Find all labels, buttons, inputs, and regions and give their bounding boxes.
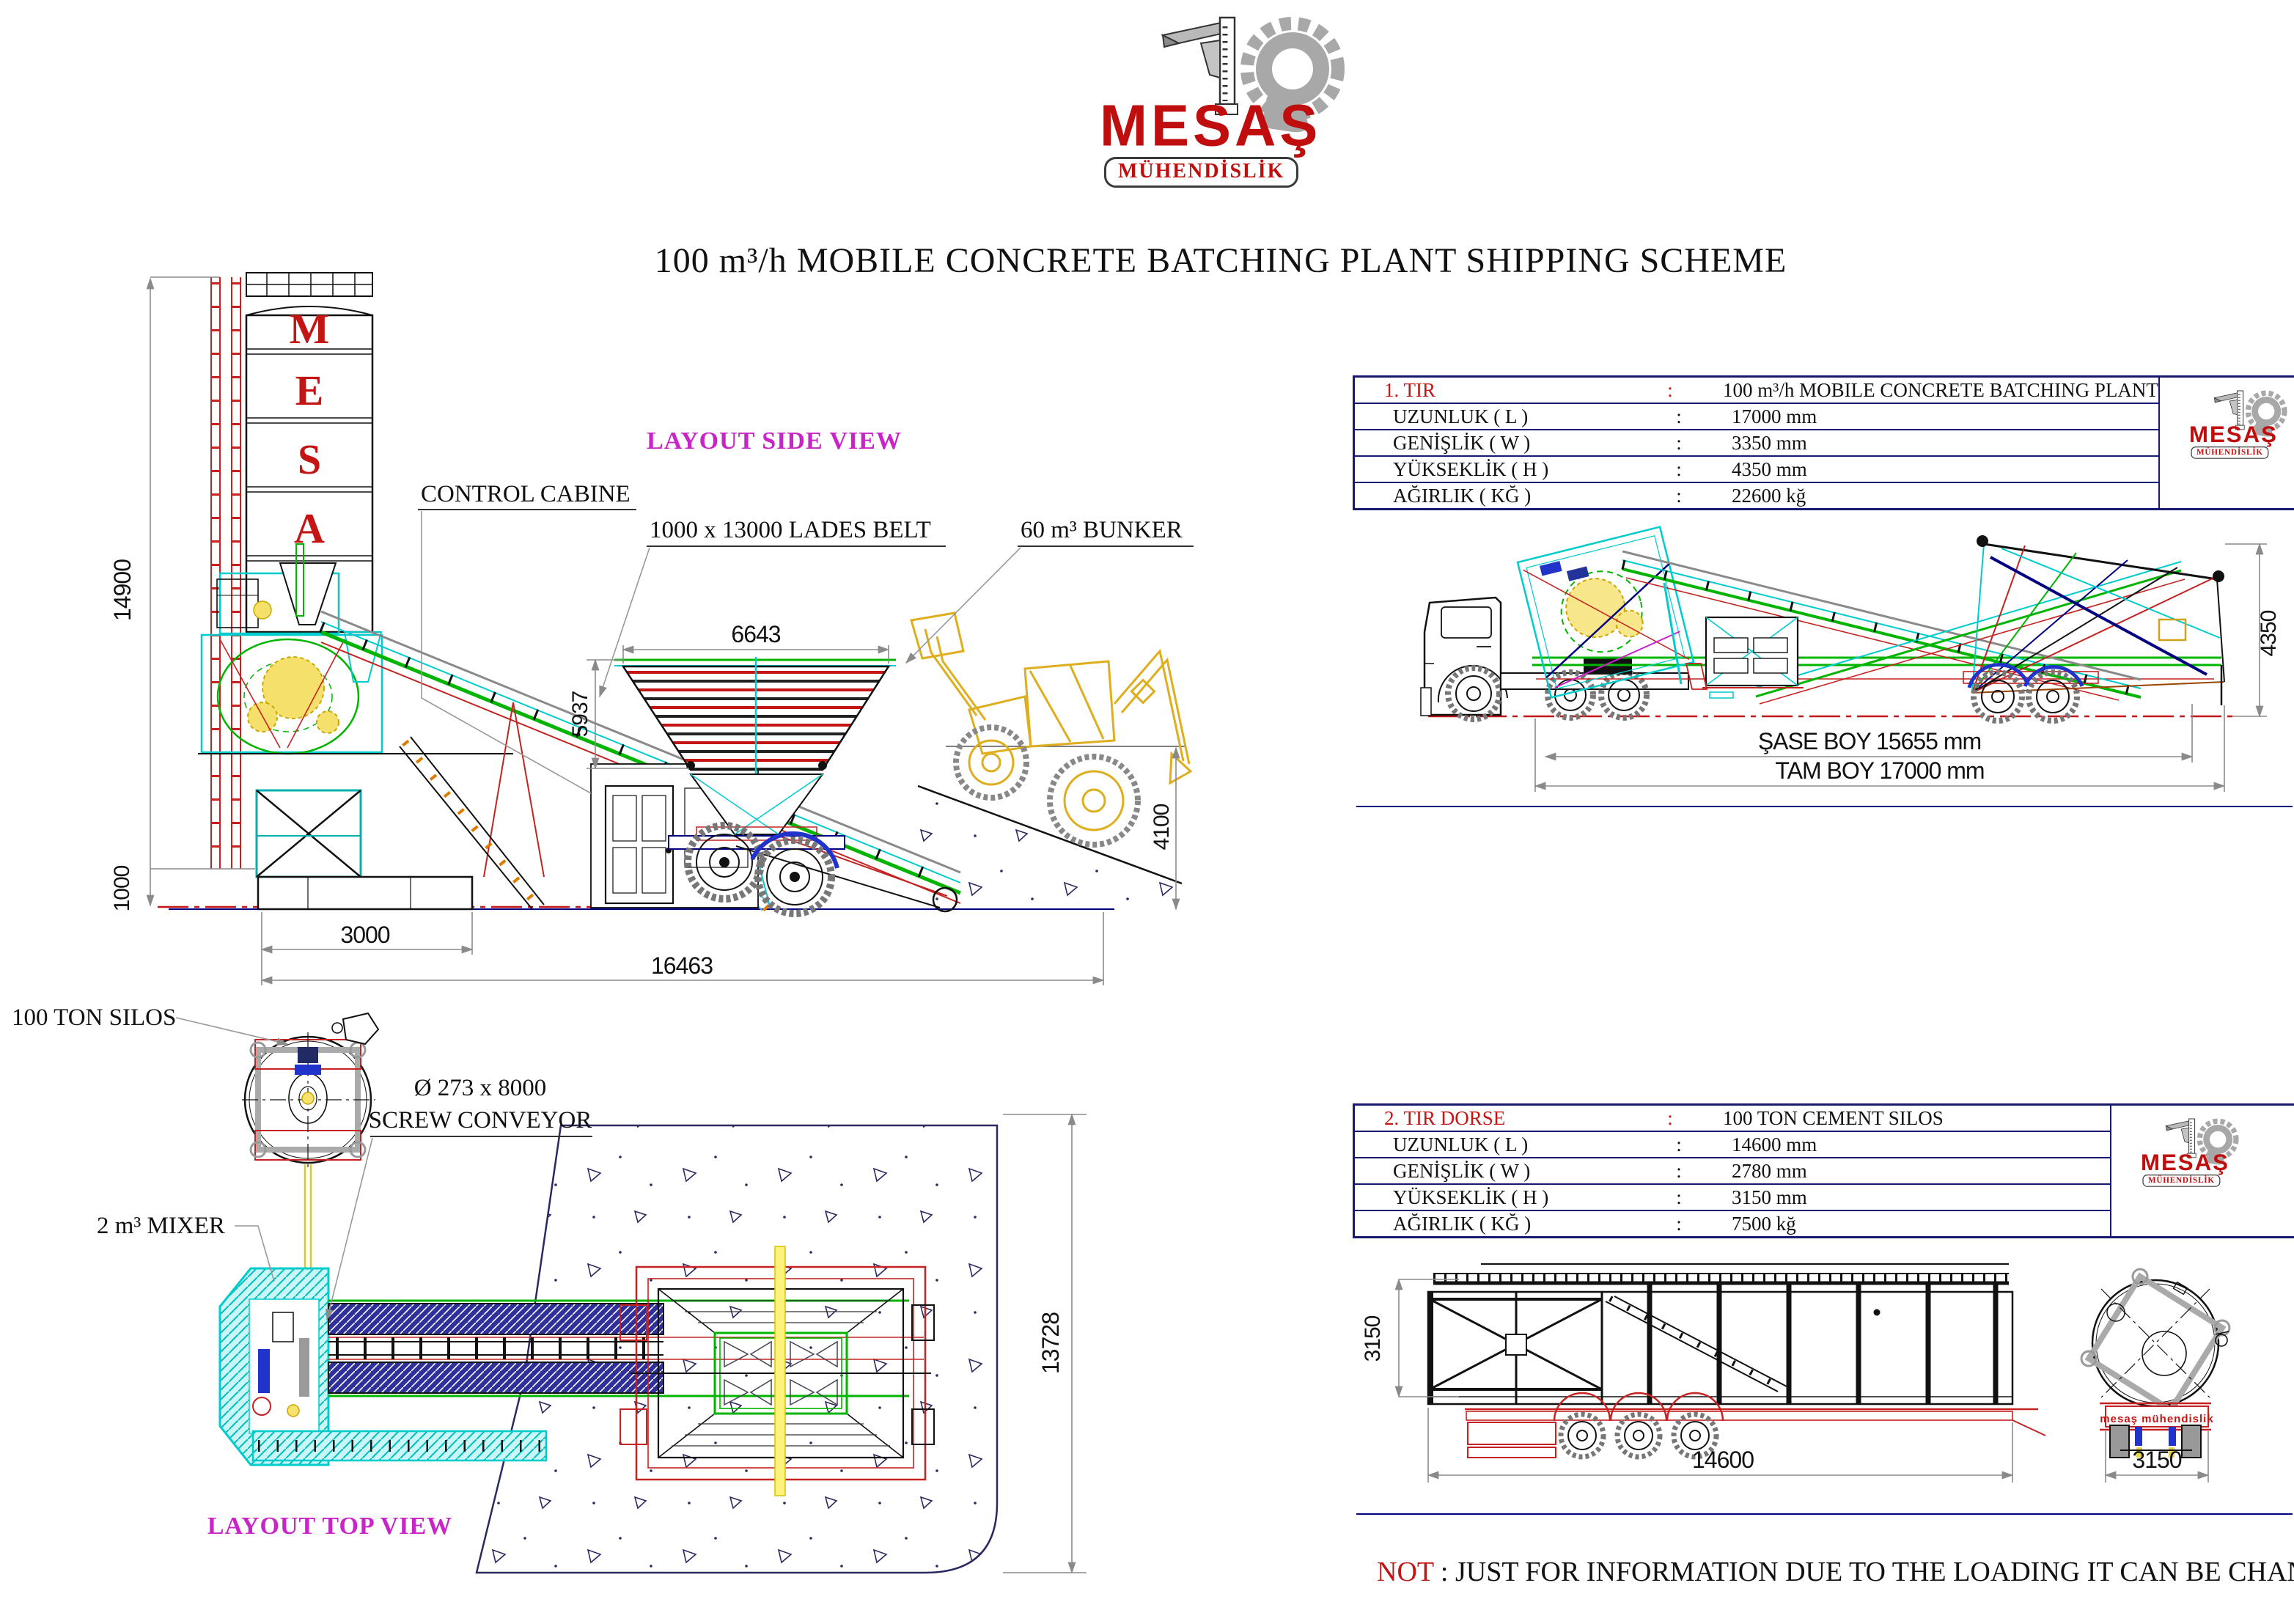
row-colon: : [1635, 432, 1723, 455]
dim-3150-h: 3150 [1361, 1315, 1385, 1362]
truck2-spec-table: 2. TIR DORSE : 100 TON CEMENT SILOS UZUN… [1353, 1103, 2294, 1238]
table-row: 1. TIR : 100 m³/h MOBILE CONCRETE BATCHI… [1355, 378, 2158, 404]
logo-subtitle: MÜHENDİSLİK [1104, 157, 1298, 188]
truck2-drawing: 3150 14600 mesaş mühendislik [1356, 1264, 2293, 1514]
row-value: 3150 mm [1723, 1186, 2110, 1209]
row-label: 2. TIR DORSE [1355, 1107, 1626, 1130]
row-colon: : [1635, 458, 1723, 481]
row-colon: : [1635, 1134, 1723, 1156]
table-row: UZUNLUK ( L ) : 14600 mm [1355, 1132, 2110, 1158]
truck1-dims [1535, 544, 2267, 792]
row-colon: : [1635, 1213, 1723, 1235]
screw-label-1: Ø 273 x 8000 [414, 1075, 547, 1101]
row-value: 17000 mm [1723, 405, 2158, 428]
dim-3000: 3000 [340, 922, 389, 948]
row-label: UZUNLUK ( L ) [1355, 405, 1635, 428]
note-prefix: NOT [1377, 1557, 1433, 1587]
table-row: GENİŞLİK ( W ) : 2780 mm [1355, 1158, 2110, 1185]
lades-belt-label: 1000 x 13000 LADES BELT [650, 517, 931, 543]
truck-cab [1421, 598, 1507, 716]
table-logo-cell: MESAŞ MÜHENDİSLİK [2158, 378, 2294, 508]
row-colon: : [1635, 405, 1723, 428]
concrete-pad [477, 1125, 997, 1573]
dim-13728: 13728 [1037, 1312, 1064, 1374]
row-value: 100 m³/h MOBILE CONCRETE BATCHING PLANT [1714, 379, 2158, 402]
table-logo-cell: MESAŞ MÜHENDİSLİK [2110, 1106, 2294, 1236]
mixer-label: 2 m³ MIXER [97, 1213, 225, 1239]
row-value: 4350 mm [1723, 458, 2158, 481]
logo-subtitle: MÜHENDİSLİK [2191, 447, 2268, 459]
row-label: GENİŞLİK ( W ) [1355, 1160, 1635, 1183]
dim-16463: 16463 [651, 952, 713, 979]
disclaimer-note: NOT : JUST FOR INFORMATION DUE TO THE LO… [1377, 1556, 2294, 1588]
row-value: 7500 kğ [1723, 1213, 2110, 1235]
dim-14600: 14600 [1692, 1447, 1754, 1473]
trailer-rear-wheels [1963, 665, 2221, 721]
silos-label: 100 TON SILOS [12, 1004, 176, 1031]
control-cabin-label: CONTROL CABINE [421, 481, 631, 507]
company-logo-mini: MESAŞ MÜHENDİSLİK [2189, 388, 2294, 473]
table-row: AĞIRLIK ( KĞ ) : 22600 kğ [1355, 483, 2158, 508]
drawing-sheet: M E S A Ş [0, 0, 2294, 1624]
silo-rear-view [2078, 1266, 2232, 1458]
row-label: AĞIRLIK ( KĞ ) [1355, 1213, 1635, 1235]
row-label: GENİŞLİK ( W ) [1355, 432, 1635, 455]
dim-6643: 6643 [731, 621, 780, 647]
table-row: UZUNLUK ( L ) : 17000 mm [1355, 404, 2158, 430]
silo-letter-s: S [298, 436, 321, 483]
note-body: : JUST FOR INFORMATION DUE TO THE LOADIN… [1433, 1557, 2294, 1587]
side-view-drawing: M E S A Ş [109, 273, 1194, 985]
row-colon: : [1635, 1160, 1723, 1183]
row-label: UZUNLUK ( L ) [1355, 1134, 1635, 1156]
dim-tam-boy: TAM BOY 17000 mm [1775, 757, 1984, 784]
top-view-caption: LAYOUT TOP VIEW [207, 1513, 452, 1540]
dim-14900: 14900 [109, 559, 136, 621]
table-row: 2. TIR DORSE : 100 TON CEMENT SILOS [1355, 1106, 2110, 1132]
ramp-concrete [909, 746, 1186, 911]
top-view-drawing: 13728 100 TON SILOS Ø 273 x 8000 SCREW C… [12, 1004, 1087, 1573]
table-row: GENİŞLİK ( W ) : 3350 mm [1355, 430, 2158, 457]
logo-wordmark: MESAŞ [2189, 420, 2278, 447]
support-frame [257, 790, 472, 909]
table-row: YÜKSEKLİK ( H ) : 4350 mm [1355, 457, 2158, 483]
sheet-title: 100 m³/h MOBILE CONCRETE BATCHING PLANT … [513, 240, 1928, 281]
company-logo: MESAŞ MÜHENDİSLİK [1100, 10, 1393, 223]
logo-wordmark: MESAŞ [2141, 1148, 2229, 1175]
truck1-drawing: 4350 ŞASE BOY 15655 mm TAM BOY 17000 mm [1356, 527, 2293, 807]
silo-top-view [242, 1013, 378, 1167]
logo-wordmark: MESAŞ [1100, 92, 1321, 160]
row-colon: : [1626, 1107, 1714, 1130]
side-view-caption: LAYOUT SIDE VIEW [647, 427, 902, 455]
row-colon: : [1635, 485, 1723, 507]
trailer-brand-plate: mesaş mühendislik [2100, 1413, 2213, 1425]
dim-4350: 4350 [2257, 610, 2281, 656]
silo-trailer-body [1428, 1264, 2012, 1404]
row-label: YÜKSEKLİK ( H ) [1355, 1186, 1635, 1209]
bunker-label: 60 m³ BUNKER [1021, 517, 1183, 543]
dim-4100: 4100 [1150, 804, 1174, 850]
table-row: YÜKSEKLİK ( H ) : 3150 mm [1355, 1185, 2110, 1211]
silo-letter-m: M [290, 305, 330, 353]
row-colon: : [1626, 379, 1714, 402]
row-label: 1. TIR [1355, 379, 1626, 402]
silo-letter-e: E [295, 367, 324, 414]
row-label: YÜKSEKLİK ( H ) [1355, 458, 1635, 481]
screw-label-2: SCREW CONVEYOR [369, 1107, 592, 1134]
dim-3150-w: 3150 [2132, 1447, 2181, 1473]
row-colon: : [1635, 1186, 1723, 1209]
row-value: 2780 mm [1723, 1160, 2110, 1183]
dim-1000: 1000 [110, 865, 134, 911]
row-value: 14600 mm [1723, 1134, 2110, 1156]
silo-letter-a: A [294, 504, 325, 552]
row-label: AĞIRLIK ( KĞ ) [1355, 485, 1635, 507]
row-value: 22600 kğ [1723, 485, 2158, 507]
truck1-spec-table: 1. TIR : 100 m³/h MOBILE CONCRETE BATCHI… [1353, 375, 2294, 510]
row-value: 3350 mm [1723, 432, 2158, 455]
dim-5937: 5937 [568, 691, 592, 737]
logo-subtitle: MÜHENDİSLİK [2142, 1175, 2220, 1187]
row-value: 100 TON CEMENT SILOS [1714, 1107, 2110, 1130]
company-logo-mini: MESAŞ MÜHENDİSLİK [2141, 1116, 2258, 1201]
dim-sase-boy: ŞASE BOY 15655 mm [1758, 728, 1981, 754]
table-row: AĞIRLIK ( KĞ ) : 7500 kğ [1355, 1211, 2110, 1236]
